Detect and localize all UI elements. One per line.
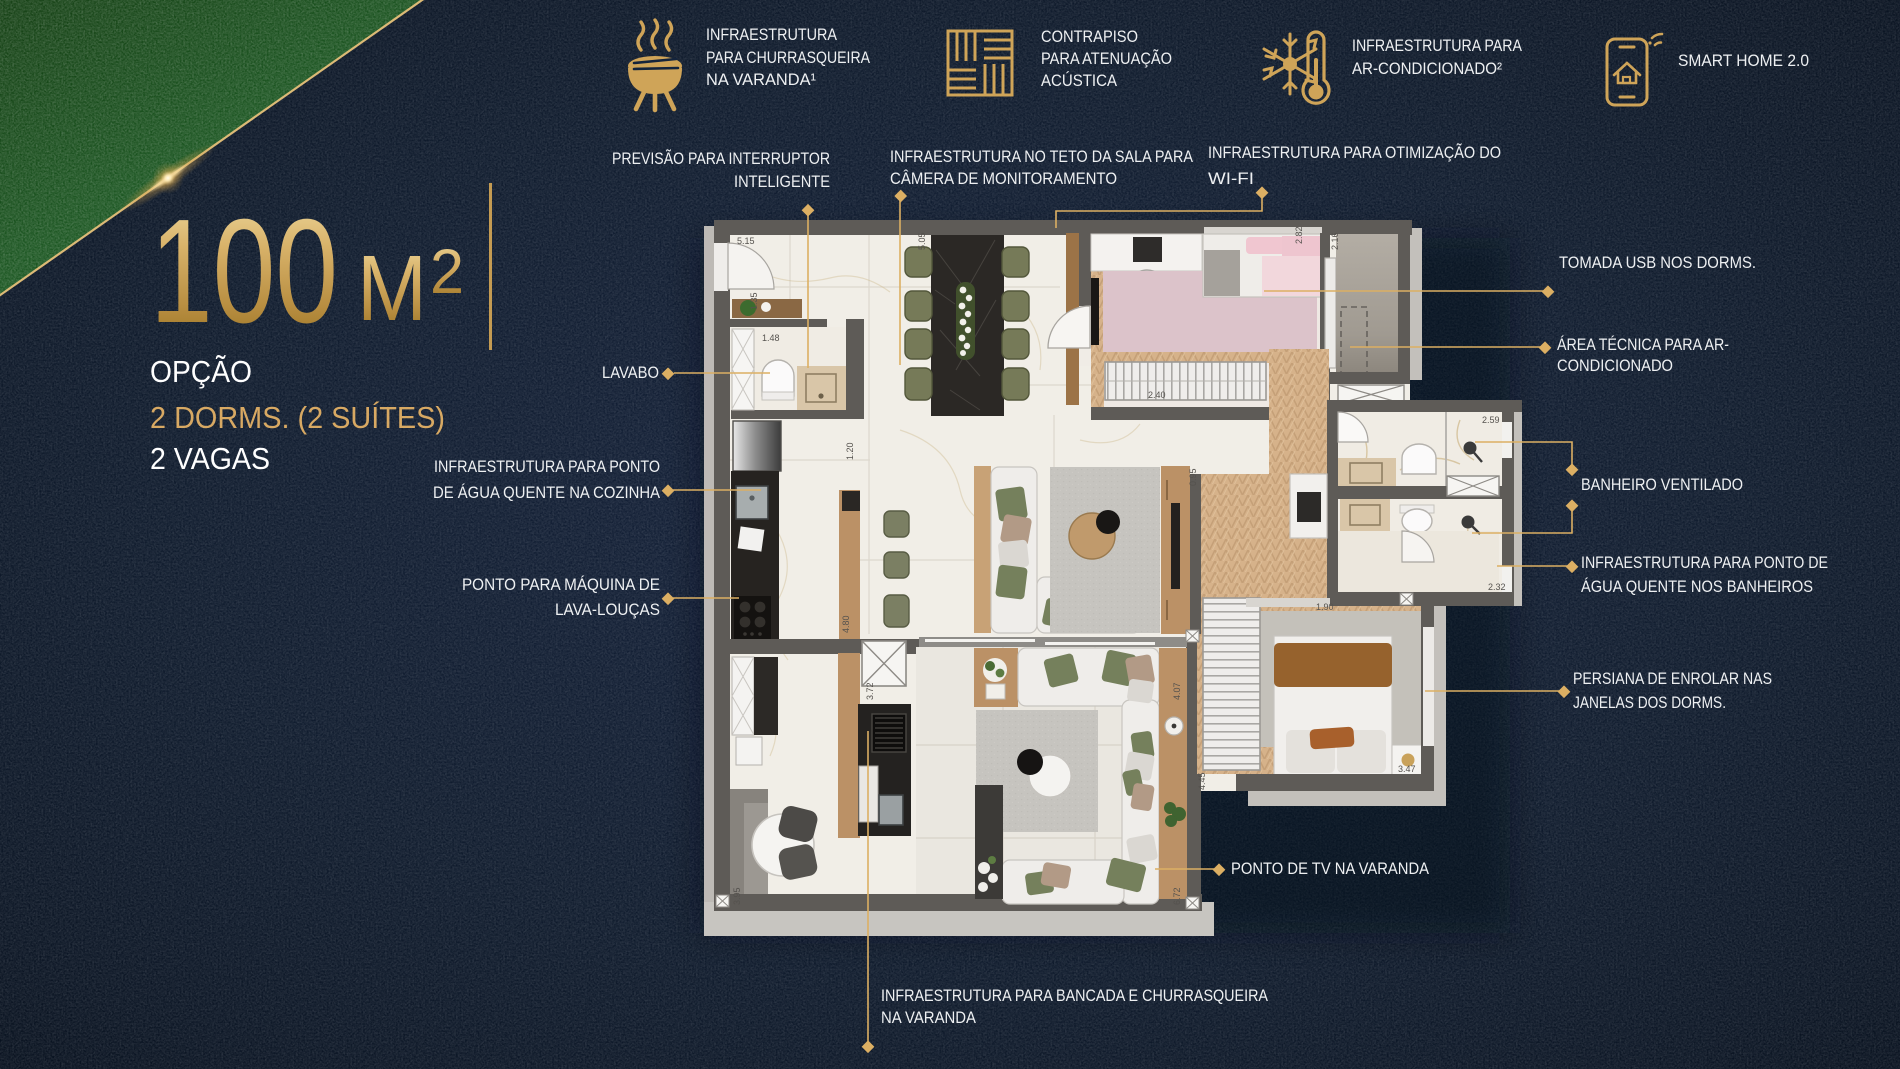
svg-text:6.72: 6.72 [1172, 887, 1182, 905]
svg-text:PARA CHURRASQUEIRA: PARA CHURRASQUEIRA [706, 48, 871, 67]
svg-text:CONTRAPISO: CONTRAPISO [1041, 27, 1138, 46]
svg-text:0.95: 0.95 [1188, 468, 1198, 486]
svg-text:OPÇÃO: OPÇÃO [150, 354, 252, 389]
svg-text:3.47: 3.47 [1398, 764, 1416, 774]
svg-text:WI-FI: WI-FI [1208, 169, 1254, 188]
svg-text:PONTO PARA MÁQUINA DE: PONTO PARA MÁQUINA DE [462, 575, 660, 594]
svg-text:ACÚSTICA: ACÚSTICA [1041, 71, 1118, 90]
svg-text:1.90: 1.90 [1316, 602, 1334, 612]
svg-text:INFRAESTRUTURA NO TETO DA SALA: INFRAESTRUTURA NO TETO DA SALA PARA [890, 147, 1194, 166]
svg-text:2.32: 2.32 [1488, 582, 1506, 592]
svg-text:CONDICIONADO: CONDICIONADO [1557, 356, 1673, 375]
svg-text:1.35: 1.35 [749, 292, 759, 310]
svg-text:JANELAS DOS DORMS.: JANELAS DOS DORMS. [1573, 693, 1726, 712]
svg-text:PERSIANA DE ENROLAR NAS: PERSIANA DE ENROLAR NAS [1573, 669, 1772, 688]
svg-text:2.16: 2.16 [1330, 232, 1340, 250]
svg-text:2.82: 2.82 [1294, 226, 1304, 244]
svg-text:5.05: 5.05 [917, 232, 927, 250]
svg-text:PONTO DE TV NA VARANDA: PONTO DE TV NA VARANDA [1231, 859, 1430, 878]
svg-text:BANHEIRO VENTILADO: BANHEIRO VENTILADO [1581, 475, 1743, 494]
svg-text:ÁREA TÉCNICA PARA AR-: ÁREA TÉCNICA PARA AR- [1557, 335, 1729, 354]
svg-text:3.95: 3.95 [732, 887, 742, 905]
svg-text:INFRAESTRUTURA: INFRAESTRUTURA [706, 25, 838, 44]
svg-text:5.15: 5.15 [737, 236, 755, 246]
svg-text:INFRAESTRUTURA PARA OTIMIZAÇÃO: INFRAESTRUTURA PARA OTIMIZAÇÃO DO [1208, 143, 1501, 162]
svg-text:2.59: 2.59 [1482, 415, 1500, 425]
svg-text:1.20: 1.20 [845, 442, 855, 460]
svg-text:PREVISÃO PARA INTERRUPTOR: PREVISÃO PARA INTERRUPTOR [612, 149, 830, 168]
svg-text:LAVABO: LAVABO [602, 363, 659, 382]
svg-text:LAVA-LOUÇAS: LAVA-LOUÇAS [555, 600, 660, 619]
svg-text:INTELIGENTE: INTELIGENTE [734, 172, 830, 191]
svg-text:AR-CONDICIONADO²: AR-CONDICIONADO² [1352, 59, 1502, 78]
svg-text:PARA ATENUAÇÃO: PARA ATENUAÇÃO [1041, 49, 1172, 68]
svg-text:INFRAESTRUTURA PARA PONTO: INFRAESTRUTURA PARA PONTO [434, 457, 660, 476]
svg-text:TOMADA USB NOS DORMS.: TOMADA USB NOS DORMS. [1559, 253, 1756, 272]
svg-text:ÁGUA QUENTE NOS BANHEIROS: ÁGUA QUENTE NOS BANHEIROS [1581, 577, 1813, 596]
svg-text:1.48: 1.48 [762, 333, 780, 343]
svg-text:INFRAESTRUTURA PARA BANCADA E: INFRAESTRUTURA PARA BANCADA E CHURRASQUE… [881, 986, 1269, 1005]
svg-text:100: 100 [150, 189, 338, 354]
svg-text:4.80: 4.80 [841, 615, 851, 633]
svg-text:NA VARANDA¹: NA VARANDA¹ [706, 70, 816, 89]
svg-text:3.72: 3.72 [865, 682, 875, 700]
svg-text:4.45: 4.45 [1197, 772, 1207, 790]
svg-text:M: M [357, 236, 427, 340]
svg-text:2 VAGAS: 2 VAGAS [150, 441, 270, 476]
svg-text:INFRAESTRUTURA PARA PONTO DE: INFRAESTRUTURA PARA PONTO DE [1581, 553, 1828, 572]
svg-text:CÂMERA DE MONITORAMENTO: CÂMERA DE MONITORAMENTO [890, 169, 1117, 188]
svg-text:INFRAESTRUTURA PARA: INFRAESTRUTURA PARA [1352, 36, 1523, 55]
svg-text:2.40: 2.40 [1148, 390, 1166, 400]
svg-text:2: 2 [430, 237, 464, 307]
svg-text:DE ÁGUA QUENTE NA COZINHA: DE ÁGUA QUENTE NA COZINHA [433, 483, 661, 502]
svg-text:4.07: 4.07 [1172, 682, 1182, 700]
svg-text:SMART HOME 2.0: SMART HOME 2.0 [1678, 51, 1809, 70]
svg-text:NA VARANDA: NA VARANDA [881, 1008, 977, 1027]
svg-text:2 DORMS. (2 SUÍTES): 2 DORMS. (2 SUÍTES) [150, 400, 445, 435]
